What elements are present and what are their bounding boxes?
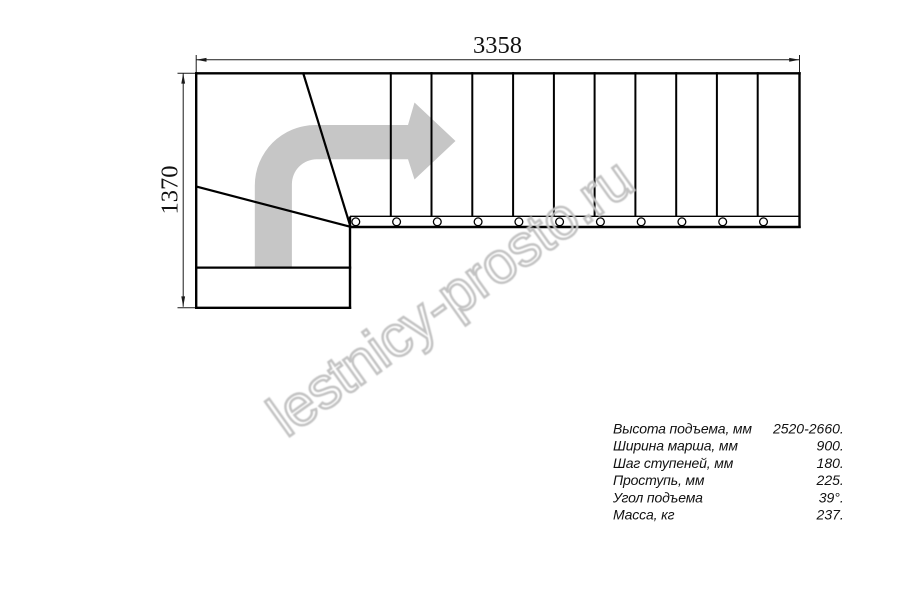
svg-text:237.: 237.	[816, 507, 844, 523]
svg-text:Ширина марша, мм: Ширина марша, мм	[613, 438, 738, 454]
svg-text:Проступь, мм: Проступь, мм	[613, 472, 705, 488]
svg-text:Шаг ступеней, мм: Шаг ступеней, мм	[613, 455, 734, 471]
svg-text:2520-2660.: 2520-2660.	[772, 420, 844, 436]
svg-text:900.: 900.	[817, 438, 844, 454]
svg-text:Угол подъема: Угол подъема	[612, 490, 703, 506]
svg-text:1370: 1370	[156, 166, 183, 215]
svg-text:180.: 180.	[817, 455, 844, 471]
svg-text:39°.: 39°.	[819, 490, 844, 506]
svg-text:225.: 225.	[816, 472, 844, 488]
svg-text:3358: 3358	[473, 32, 522, 59]
svg-text:Масса, кг: Масса, кг	[613, 507, 675, 523]
svg-text:Высота подъема, мм: Высота подъема, мм	[613, 420, 752, 436]
